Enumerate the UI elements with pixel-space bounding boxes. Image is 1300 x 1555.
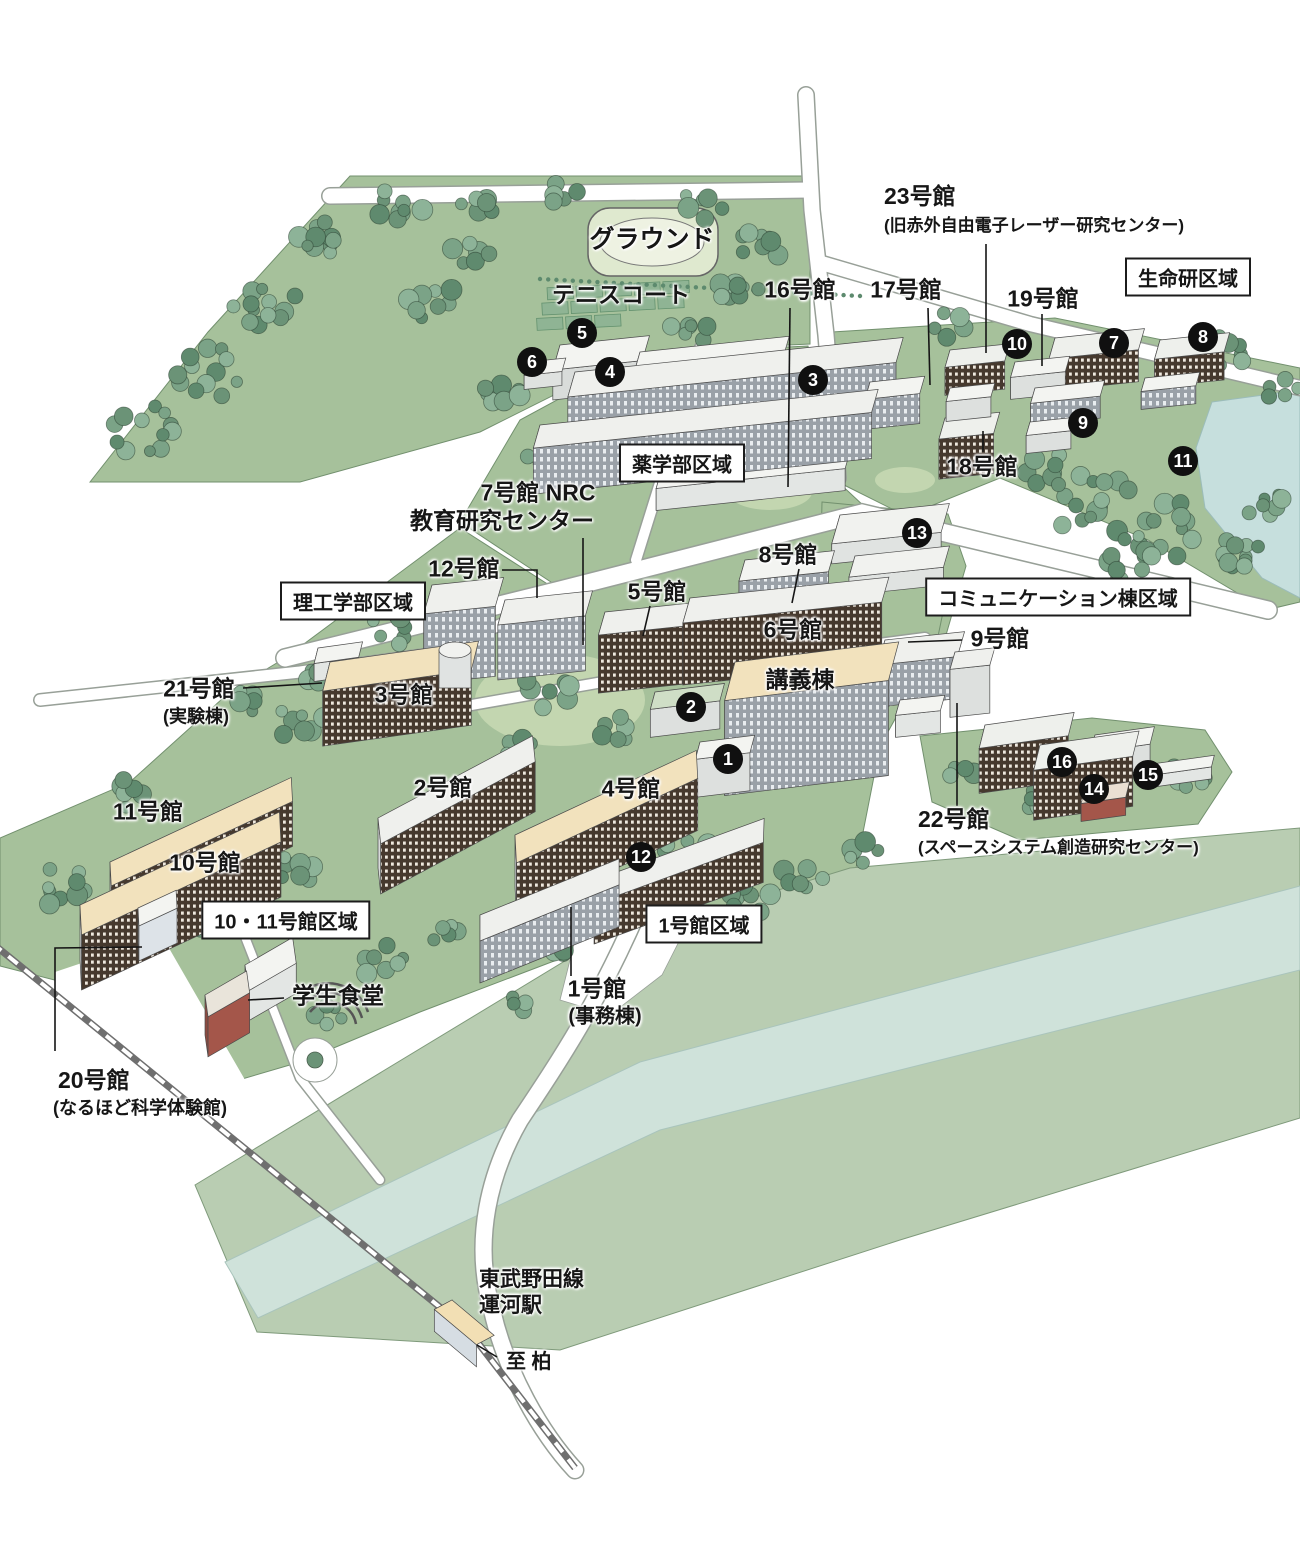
campus-map: グラウンドテニスコート16号館17号館23号館(旧赤外自由電子レーザー研究センタ… xyxy=(0,0,1300,1555)
campus-map-illustration xyxy=(0,0,1300,1555)
